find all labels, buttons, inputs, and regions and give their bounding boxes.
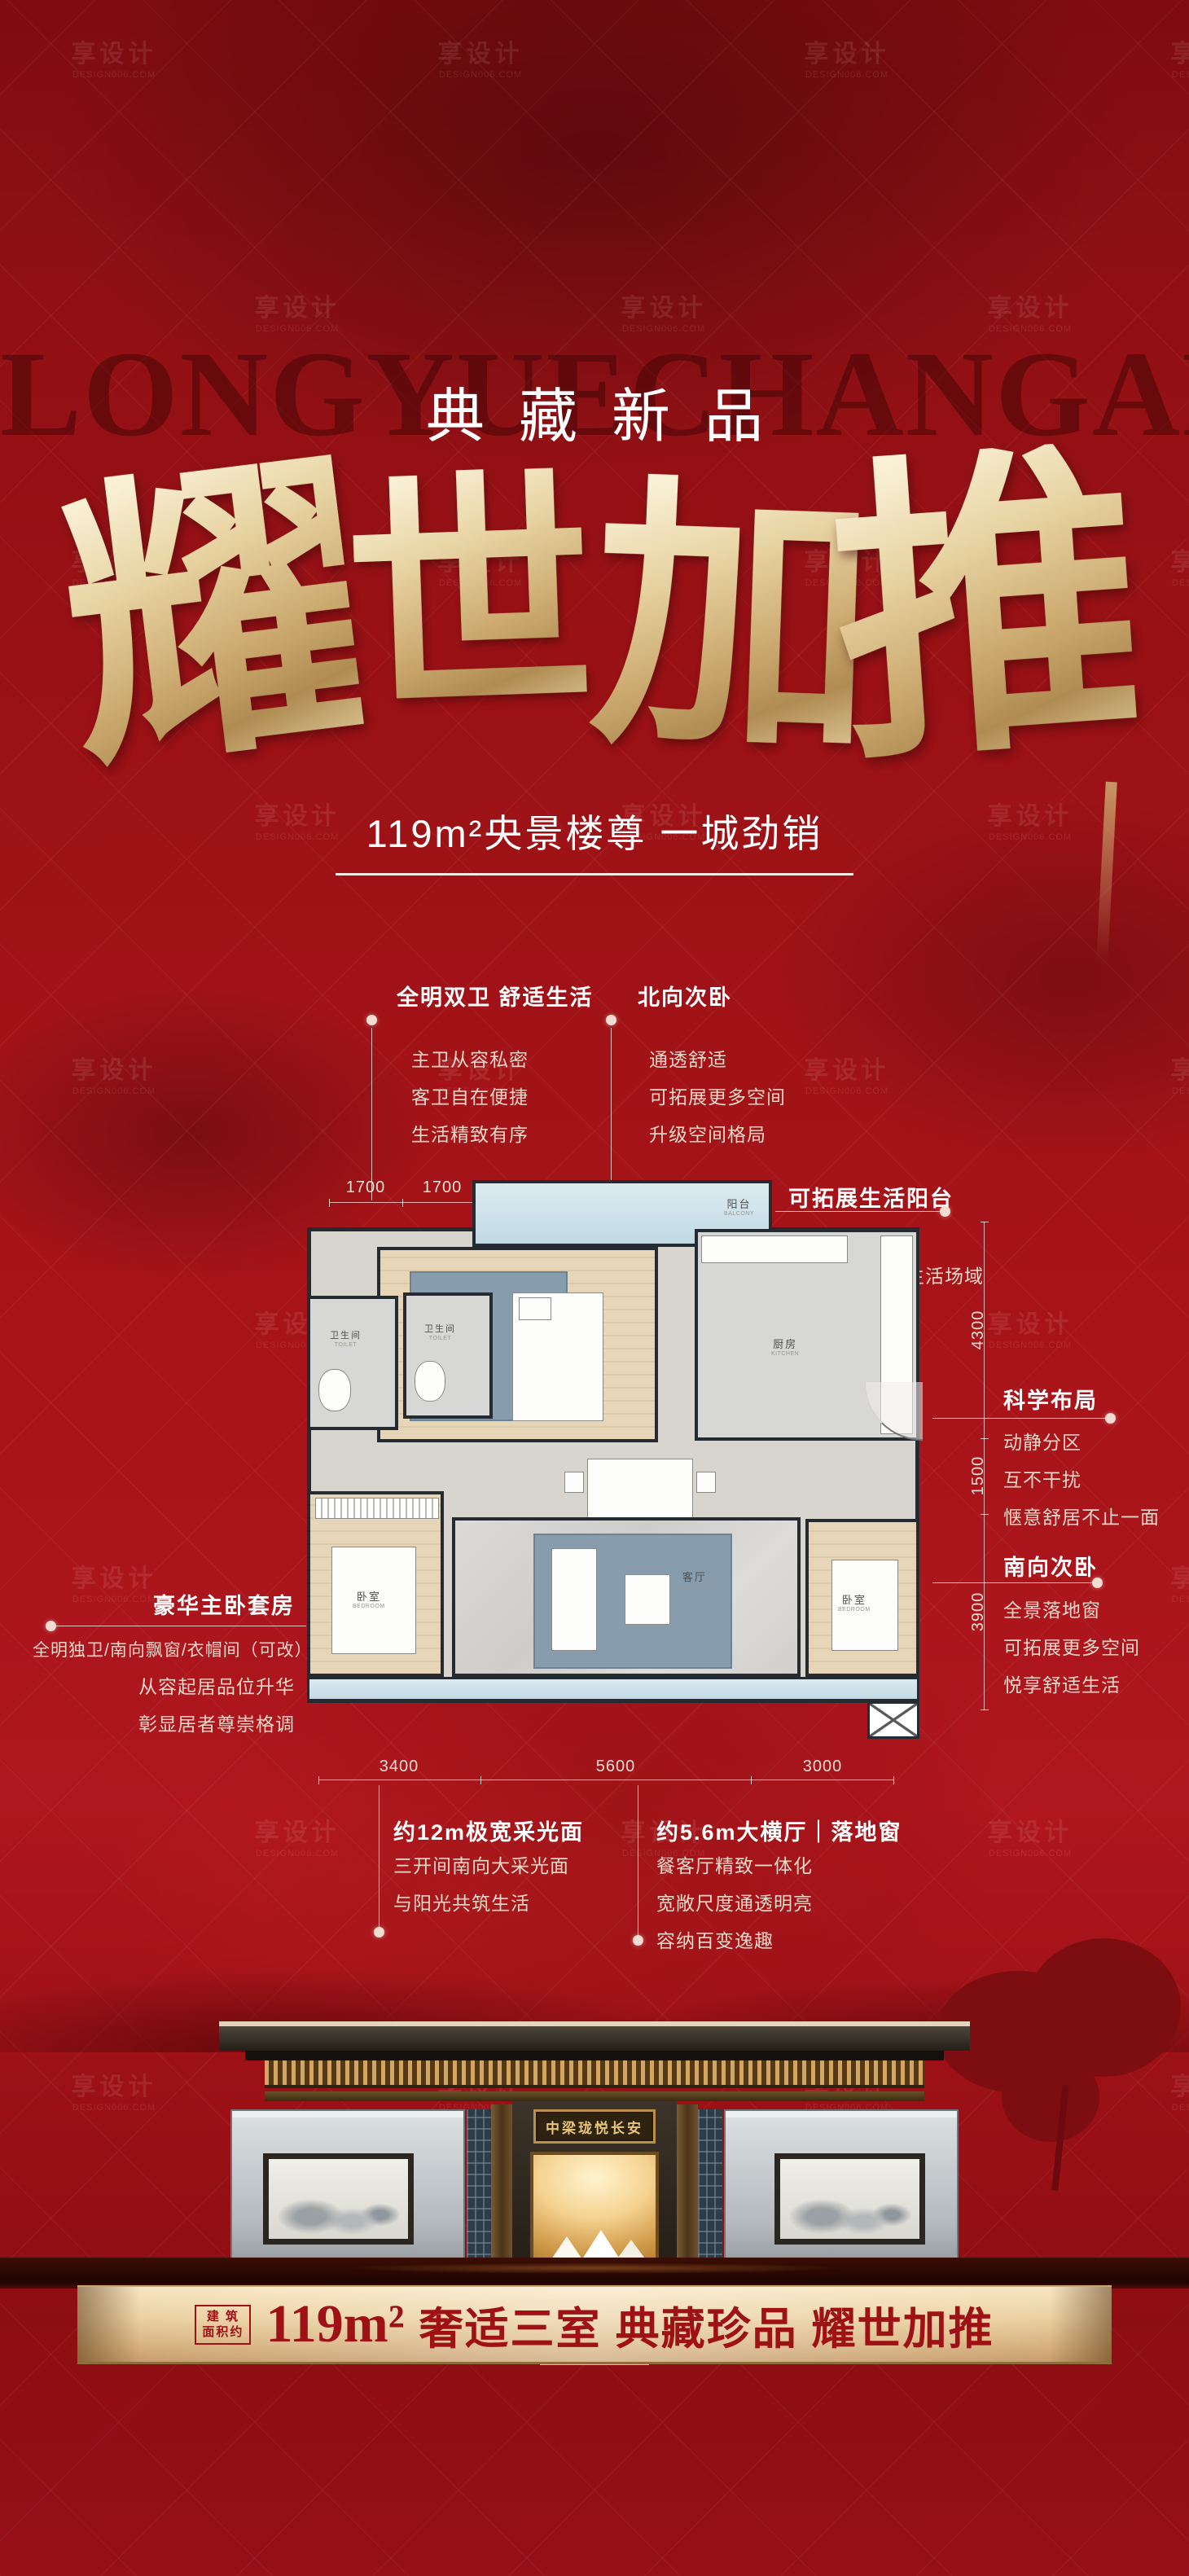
room-name-en: KITCHEN	[771, 1351, 799, 1358]
room-label: 阳台 BALCONY	[724, 1198, 754, 1218]
golden-slat-band	[265, 2060, 924, 2088]
callout-line: 从容起居品位升华	[33, 1671, 295, 1699]
watermark: 享设计DESIGN006.COM	[407, 39, 554, 81]
room-living: 客厅 LIVING ROOM	[452, 1517, 801, 1677]
callout-master-lines: 全明独卫/南向飘窗/衣帽间（可改） 从容起居品位升华 彰显居者尊崇格调	[33, 1637, 295, 1746]
plaque-text: 中梁珑悦长安	[546, 2117, 643, 2137]
callout-layout-lines: 动静分区 互不干扰 惬意舒居不止一面	[1003, 1427, 1160, 1539]
callout-south-bedroom-lines: 全景落地窗 可拓展更多空间 悦享舒适生活	[1003, 1595, 1140, 1707]
callout-line: 全景落地窗	[1003, 1595, 1140, 1622]
callout-line: 动静分区	[1003, 1427, 1160, 1455]
area-prefix-bottom: 面积约	[202, 2324, 244, 2341]
dim-value: 3400	[380, 1758, 419, 1776]
chair	[696, 1472, 716, 1493]
watermark: 享设计DESIGN006.COM	[1140, 39, 1189, 81]
room-name-en: BALCONY	[724, 1211, 754, 1218]
watermark: 享设计DESIGN006.COM	[224, 1818, 371, 1859]
watermark: 享设计DESIGN006.COM	[1140, 1564, 1189, 1605]
room-name-en: TOILET	[424, 1336, 456, 1343]
callout-dot	[366, 1015, 377, 1025]
landscape-mural	[774, 2153, 925, 2245]
room-toilet-1: 卫生间 TOILET	[307, 1296, 398, 1430]
leader-line	[932, 1418, 1110, 1419]
callout-line: 宽敞尺度通透明亮	[656, 1888, 813, 1916]
room-label: 客厅 LIVING ROOM	[673, 1571, 716, 1591]
dim-value: 3900	[969, 1592, 988, 1632]
callout-dot	[633, 1935, 643, 1946]
shaft-xbox	[867, 1701, 919, 1739]
callout-line: 与阳光共筑生活	[393, 1888, 569, 1916]
room-name-zh: 卧室	[842, 1594, 867, 1606]
column	[491, 2104, 512, 2278]
callout-dot	[1092, 1578, 1103, 1588]
callout-line: 餐客厅精致一体化	[656, 1850, 813, 1878]
watermark: 享设计DESIGN006.COM	[774, 39, 920, 81]
lit-doorway	[530, 2152, 659, 2274]
hero-char: 世	[342, 466, 589, 732]
landscape-mural	[263, 2153, 414, 2245]
dim-value: 5600	[596, 1758, 636, 1776]
room-label: 卧室 BEDROOM	[838, 1594, 871, 1614]
ground-reflection	[342, 2262, 847, 2274]
subtitle: 119m²央景楼尊 一城劲销	[336, 802, 854, 875]
room-name-zh: 客厅	[682, 1571, 707, 1583]
watermark: 享设计DESIGN006.COM	[1140, 2072, 1189, 2113]
room-toilet-2: 卫生间 TOILET	[403, 1292, 493, 1419]
callout-layout-title: 科学布局	[1003, 1383, 1098, 1415]
room-name-zh: 卫生间	[330, 1331, 362, 1341]
room-label: 厨房 KITCHEN	[771, 1338, 799, 1358]
room-name-zh: 阳台	[727, 1198, 752, 1210]
callout-line: 全明独卫/南向飘窗/衣帽间（可改）	[33, 1637, 295, 1661]
watermark: 享设计DESIGN006.COM	[1140, 1055, 1189, 1097]
callout-hall-title: 约5.6m大横厅｜落地窗	[656, 1815, 902, 1846]
chair	[564, 1472, 584, 1493]
poster: 享设计DESIGN006.COM享设计DESIGN006.COM享设计DESIG…	[0, 0, 1189, 2576]
wall-cornice	[726, 2111, 957, 2117]
banner-area: 119m²	[265, 2293, 404, 2355]
wardrobe	[315, 1498, 439, 1519]
callout-dot	[606, 1015, 616, 1025]
kitchen-sink-counter	[701, 1235, 848, 1263]
floorplan: 阳台 BALCONY 卧室 BEDROOM 厨房 KITCHEN 卫生	[305, 1175, 923, 1713]
room-name-en: BEDROOM	[838, 1607, 871, 1614]
callout-line: 可拓展更多空间	[649, 1082, 786, 1109]
watermark: 享设计DESIGN006.COM	[41, 1055, 187, 1097]
callout-master-title: 豪华主卧套房	[33, 1588, 295, 1620]
callout-line: 通透舒适	[649, 1044, 786, 1072]
room-name-en: BEDROOM	[353, 1604, 385, 1611]
room-name-zh: 卧室	[357, 1591, 381, 1603]
hero-char: 加	[586, 472, 859, 767]
window-strip	[307, 1677, 919, 1701]
callout-north-bedroom-title: 北向次卧	[638, 980, 732, 1012]
roof	[219, 2026, 970, 2051]
area-prefix-top: 建 筑	[202, 2309, 244, 2325]
dim-tick	[981, 1222, 989, 1222]
leader-line	[54, 1626, 306, 1626]
leader-line	[379, 1785, 380, 1930]
frieze	[265, 2091, 924, 2101]
callout-line: 主卫从容私密	[411, 1044, 529, 1072]
gate-center-bay: 中梁珑悦长安	[512, 2101, 677, 2278]
side-wall-right	[724, 2109, 959, 2278]
dimension-line-right: 4300 1500 3900	[984, 1222, 985, 1710]
callout-line: 彰显居者尊崇格调	[33, 1709, 295, 1736]
callout-south-bedroom-title: 南向次卧	[1003, 1550, 1098, 1582]
callout-line: 互不干扰	[1003, 1464, 1160, 1492]
callout-dot	[374, 1927, 384, 1937]
callout-daylight-lines: 三开间南向大采光面 与阳光共筑生活	[393, 1850, 569, 1925]
room-name-zh: 厨房	[773, 1338, 797, 1350]
dim-value: 1500	[969, 1456, 988, 1496]
room-bedroom-south: 卧室 BEDROOM	[805, 1519, 919, 1677]
subtitle-wrap: 119m²央景楼尊 一城劲销	[0, 802, 1189, 875]
hero-char: 推	[823, 439, 1139, 779]
lattice-window	[698, 2109, 722, 2278]
pillow	[519, 1297, 551, 1320]
side-wall-left	[230, 2109, 465, 2278]
leader-line	[638, 1785, 638, 1938]
coffee-table	[625, 1574, 670, 1625]
dim-value: 4300	[969, 1310, 988, 1350]
toilet-fixture	[318, 1369, 351, 1411]
watermark: 享设计DESIGN006.COM	[957, 1818, 1103, 1859]
roof-shadow	[245, 2051, 944, 2060]
dim-tick	[893, 1776, 894, 1784]
dim-tick	[981, 1709, 989, 1710]
dim-tick	[480, 1776, 481, 1784]
tree-silhouette	[1002, 2052, 1099, 2142]
watermark: 享设计DESIGN006.COM	[41, 2072, 187, 2113]
callout-line: 悦享舒适生活	[1003, 1670, 1140, 1697]
callout-dot	[46, 1621, 56, 1631]
dim-tick	[318, 1776, 319, 1784]
room-label: 卫生间 TOILET	[424, 1322, 456, 1343]
banner-slogan: 奢适三室 典藏珍品 耀世加推	[419, 2293, 994, 2357]
wall-cornice	[232, 2111, 463, 2117]
callout-line: 三开间南向大采光面	[393, 1850, 569, 1878]
entrance-gate: 中梁珑悦长安	[208, 2013, 981, 2280]
hero-char: 耀	[48, 447, 367, 788]
dim-tick	[981, 1438, 989, 1439]
callout-baths-title: 全明双卫 舒适生活	[397, 980, 594, 1012]
dimension-line-bottom: 3400 5600 3000	[318, 1780, 894, 1780]
dim-value: 3000	[803, 1758, 843, 1776]
room-label: 卫生间 TOILET	[330, 1328, 362, 1349]
callout-baths-lines: 主卫从容私密 客卫自在便捷 生活精致有序	[411, 1044, 529, 1156]
callout-line: 可拓展更多空间	[1003, 1632, 1140, 1660]
room-name-en: TOILET	[330, 1342, 362, 1349]
callout-daylight-title: 约12m极宽采光面	[393, 1815, 584, 1846]
lattice-window	[467, 2109, 491, 2278]
hero-calligraphy: 耀 世 加 推	[0, 411, 1189, 810]
room-label: 卧室 BEDROOM	[353, 1591, 385, 1611]
sofa	[551, 1548, 597, 1651]
watermark: 享设计DESIGN006.COM	[41, 39, 187, 81]
callout-line: 客卫自在便捷	[411, 1082, 529, 1109]
ground-band	[0, 2258, 1189, 2289]
toilet-fixture	[415, 1361, 445, 1402]
callout-line: 惬意舒居不止一面	[1003, 1502, 1160, 1529]
column	[677, 2104, 698, 2278]
callout-dot	[1105, 1413, 1116, 1424]
leader-line	[932, 1582, 1097, 1583]
area-prefix-box: 建 筑 面积约	[195, 2305, 251, 2345]
room-bedroom-master: 卧室 BEDROOM	[307, 1491, 444, 1677]
room-name-en: LIVING ROOM	[673, 1584, 716, 1591]
bottom-banner: 建 筑 面积约 119m² 奢适三室 典藏珍品 耀世加推	[77, 2285, 1112, 2364]
callout-line: 升级空间格局	[649, 1119, 786, 1147]
room-name-zh: 卫生间	[424, 1324, 456, 1334]
gate-plaque: 中梁珑悦长安	[533, 2109, 656, 2144]
dim-tick	[751, 1776, 752, 1784]
callout-north-bedroom-lines: 通透舒适 可拓展更多空间 升级空间格局	[649, 1044, 786, 1156]
callout-line: 生活精致有序	[411, 1119, 529, 1147]
watermark: 享设计DESIGN006.COM	[774, 1055, 920, 1097]
callout-dot	[940, 1206, 950, 1217]
dim-tick	[981, 1514, 989, 1515]
